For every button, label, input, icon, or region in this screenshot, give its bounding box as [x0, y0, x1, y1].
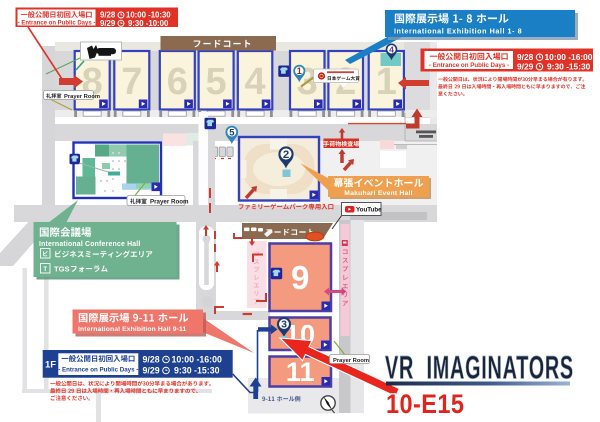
svg-text:6: 6 [167, 61, 188, 103]
svg-text:4: 4 [245, 61, 266, 103]
svg-text:9:30 -15:30: 9:30 -15:30 [547, 62, 591, 72]
svg-text:T: T [43, 267, 47, 273]
svg-text:Makuhari Event Hall: Makuhari Event Hall [344, 190, 412, 197]
svg-text:International Conference Hall: International Conference Hall [39, 241, 141, 248]
svg-text:9/29: 9/29 [517, 62, 534, 72]
svg-text:10-E15: 10-E15 [386, 390, 464, 420]
svg-text:1: 1 [297, 66, 302, 76]
svg-text:5: 5 [229, 126, 234, 137]
svg-text:- Entrance on Public Days -: - Entrance on Public Days - [429, 62, 509, 69]
svg-text:2: 2 [283, 149, 289, 161]
svg-text:9/29: 9/29 [143, 366, 160, 376]
svg-text:5: 5 [206, 61, 227, 103]
svg-text:9:30 -10:00: 9:30 -10:00 [128, 19, 169, 28]
svg-text:- Entrance on Public Days -: - Entrance on Public Days - [18, 20, 96, 26]
svg-text:10:00 -16:00: 10:00 -16:00 [172, 355, 222, 365]
svg-text:VR IMAGINATORS: VR IMAGINATORS [385, 350, 574, 386]
svg-text:10:00 -16:00: 10:00 -16:00 [545, 52, 593, 62]
svg-text:4: 4 [389, 44, 394, 54]
svg-text:International Exhibition Hall: International Exhibition Hall 1- 8 [394, 27, 522, 36]
svg-text:7: 7 [121, 61, 142, 103]
svg-text:Prayer Room: Prayer Room [333, 358, 369, 364]
svg-text:9/29: 9/29 [100, 19, 116, 28]
svg-text:11: 11 [286, 357, 315, 387]
svg-text:International Exhibition Hall: International Exhibition Hall 9-11 [78, 326, 187, 333]
svg-text:1F: 1F [45, 360, 56, 371]
svg-text:Prayer Room: Prayer Room [150, 198, 189, 205]
svg-text:YouTube: YouTube [356, 207, 382, 214]
svg-text:1: 1 [376, 61, 397, 103]
svg-text:Prayer Room: Prayer Room [64, 94, 100, 100]
svg-text:9:30 -15:30: 9:30 -15:30 [174, 366, 220, 376]
svg-text:TGS: TGS [54, 265, 70, 274]
svg-text:- Entrance on Public Days -: - Entrance on Public Days - [58, 366, 138, 373]
svg-text:9/28: 9/28 [517, 52, 534, 62]
svg-text:3: 3 [281, 319, 287, 331]
svg-text:9/28: 9/28 [143, 355, 160, 365]
svg-text:9: 9 [291, 259, 309, 296]
